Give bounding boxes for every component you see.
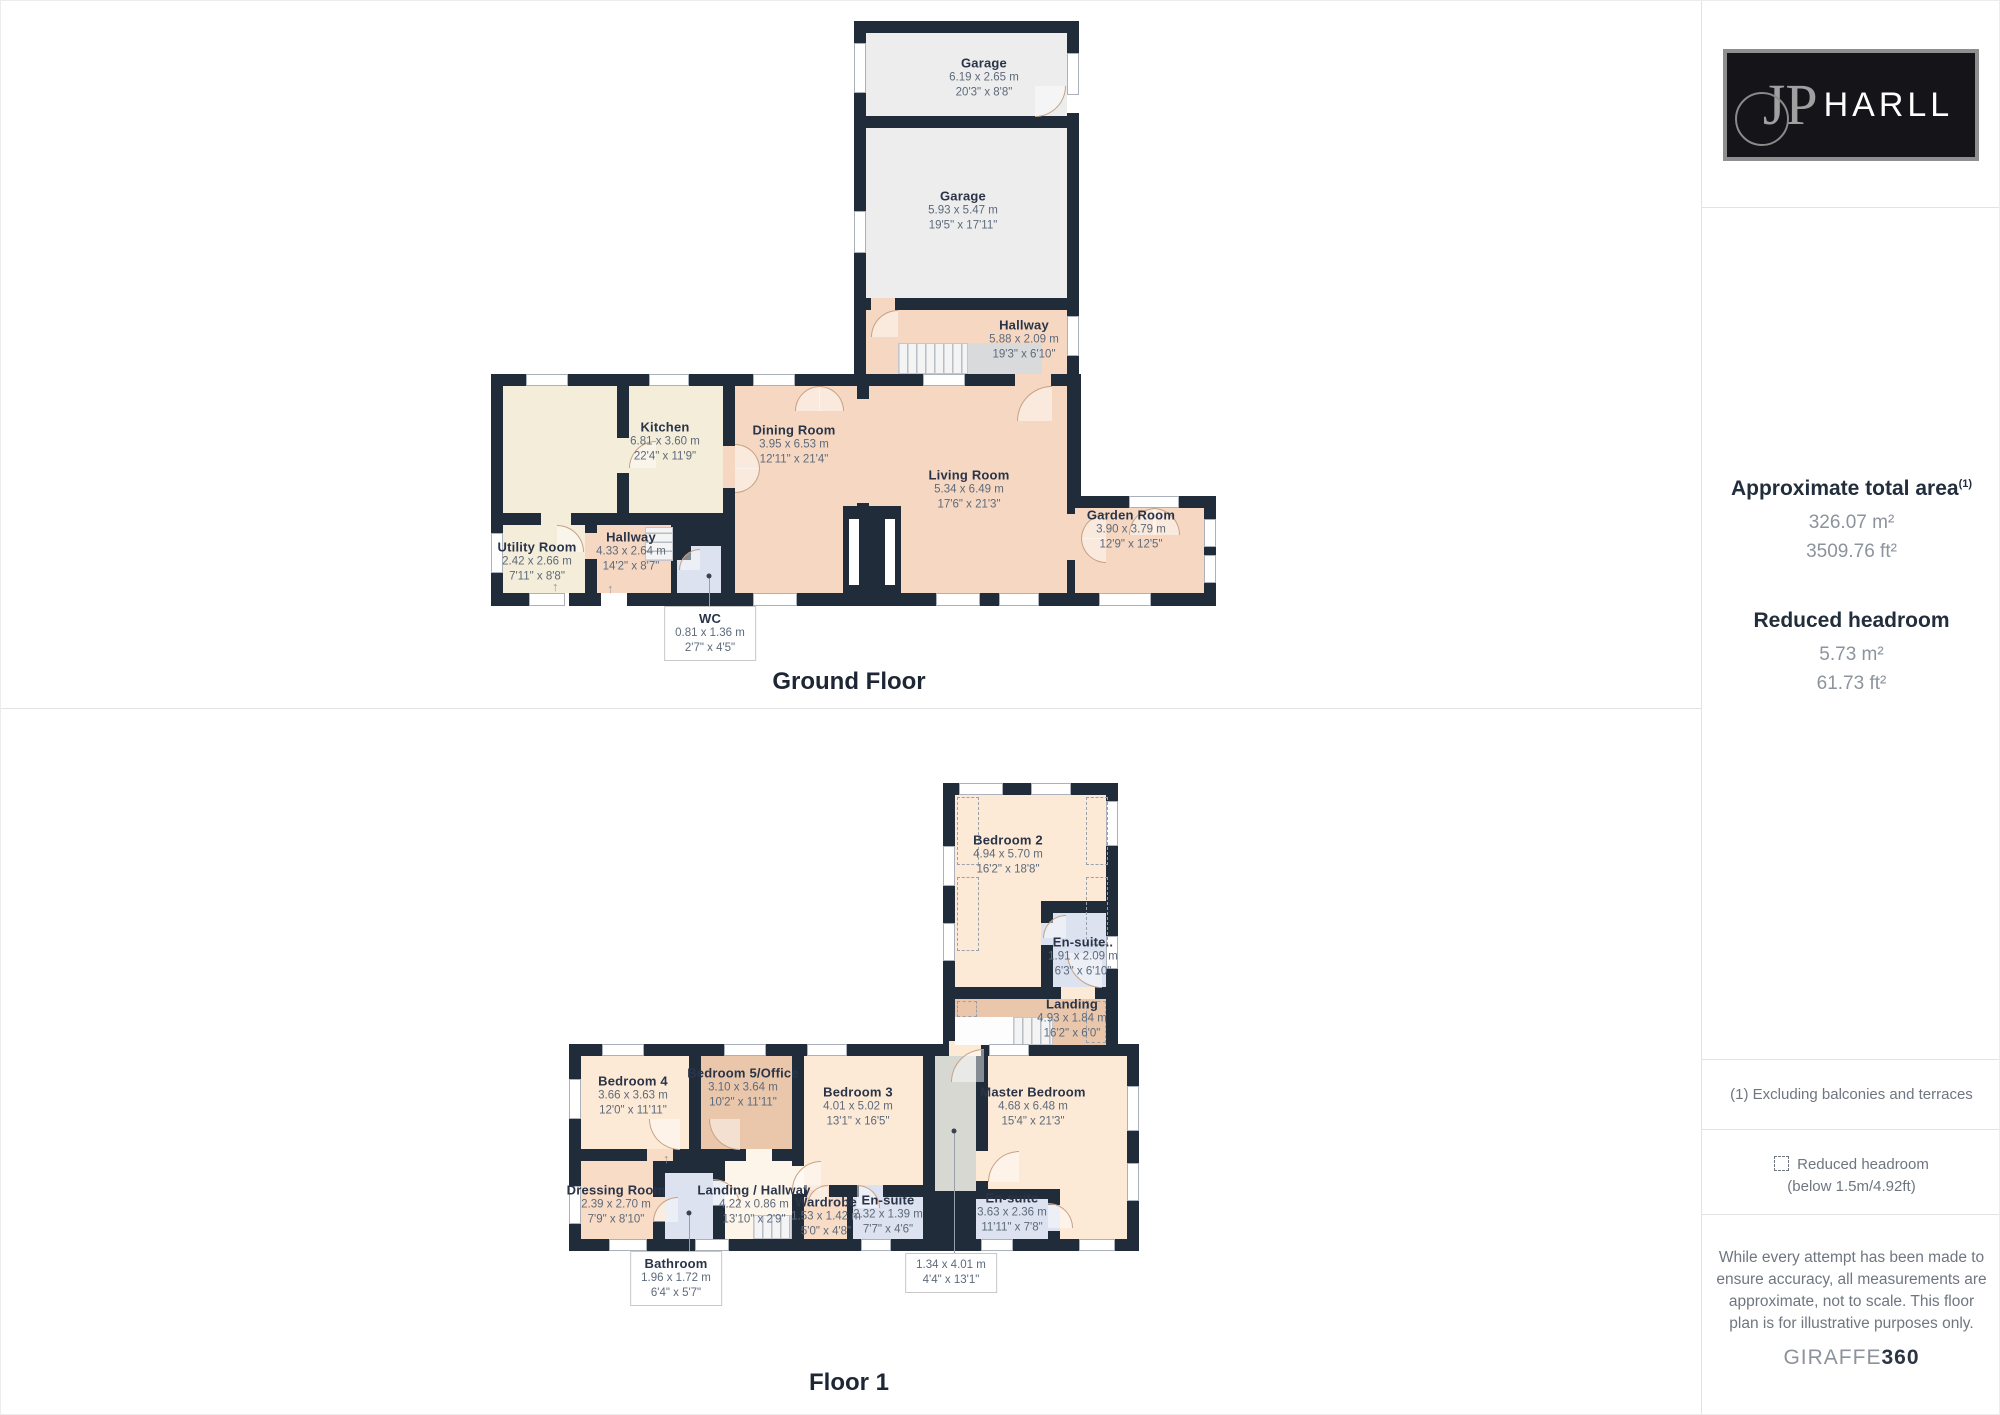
room-label-garage-1: Garage 6.19 x 2.65 m 20'3" x 8'8" — [949, 55, 1019, 100]
window — [753, 593, 797, 606]
window — [943, 846, 955, 886]
room-label-hallway-2: Hallway 4.33 x 2.64 m 14'2" x 8'7" — [596, 529, 666, 574]
window — [1067, 316, 1079, 356]
window — [695, 1239, 729, 1251]
window — [569, 1079, 581, 1119]
floorplan-page: ↑↑↑ Garage 6.19 x 2.65 m 20'3" x 8'8" Ga… — [0, 0, 2000, 1415]
reduced-headroom-icon — [1774, 1156, 1789, 1171]
room-label-ensuite-bedroom2: En-suite.. 1.91 x 2.09 m 6'3" x 6'10" — [1048, 934, 1118, 979]
callout-connector-line — [954, 1131, 955, 1253]
staircase — [898, 343, 968, 374]
floor-section-divider — [1, 708, 1701, 709]
stair-void — [955, 1017, 1013, 1045]
reduced-headroom-m2: 5.73 m² — [1702, 644, 2000, 666]
door-opening — [857, 399, 869, 503]
legend-reduced-headroom: Reduced headroom (below 1.5m/4.92ft) — [1702, 1154, 2000, 1198]
room-label-dining-room: Dining Room 3.95 x 6.53 m 12'11" x 21'4" — [752, 422, 835, 467]
window — [1099, 593, 1151, 606]
window — [999, 593, 1039, 606]
corridor-callout: 1.34 x 4.01 m 4'4" x 13'1" — [905, 1253, 997, 1293]
window — [936, 593, 980, 606]
window — [1031, 783, 1071, 795]
room-label-master-bedroom: Master Bedroom 4.68 x 6.48 m 15'4" x 21'… — [980, 1084, 1085, 1129]
giraffe360-brand: GIRAFFE360 — [1702, 1346, 2000, 1370]
interior-wall — [617, 473, 629, 513]
room-label-kitchen: Kitchen 6.81 x 3.60 m 22'4" x 11'9" — [630, 419, 700, 464]
sidebar-divider — [1702, 1129, 2000, 1130]
window — [981, 1239, 1013, 1251]
room-label-landing: Landing 4.93 x 1.84 m 16'2" x 6'0" — [1037, 996, 1107, 1041]
window — [649, 374, 689, 386]
window — [1067, 53, 1079, 95]
window — [1079, 1239, 1115, 1251]
room-label-bedroom-2: Bedroom 2 4.94 x 5.70 m 16'2" x 18'8" — [973, 832, 1043, 877]
bathroom-callout: Bathroom 1.96 x 1.72 m 6'4" x 5'7" — [630, 1251, 722, 1306]
window — [1127, 1163, 1139, 1201]
room-label-hallway-top: Hallway 5.88 x 2.09 m 19'3" x 6'10" — [989, 317, 1059, 362]
callout-connector-dot — [707, 574, 712, 579]
room-label-dressing-room: Dressing Room 2.39 x 2.70 m 7'9" x 8'10" — [567, 1182, 666, 1227]
callout-connector-line — [689, 1213, 690, 1253]
reduced-headroom-area — [957, 877, 979, 951]
window — [854, 211, 866, 253]
room-label-garden-room: Garden Room 3.90 x 3.79 m 12'9" x 12'5" — [1087, 507, 1175, 552]
total-area-m2: 326.07 m² — [1702, 512, 2000, 534]
room-label-bedroom-3: Bedroom 3 4.01 x 5.02 m 13'1" x 16'5" — [823, 1084, 893, 1129]
room-label-wardrobe: Wardrobe 1.53 x 1.42 m 5'0" x 4'8" — [791, 1194, 861, 1239]
reduced-headroom-ft2: 61.73 ft² — [1702, 673, 2000, 695]
dining-room-floor — [735, 386, 857, 593]
door-opening — [885, 519, 895, 585]
logo-circle-flourish — [1735, 92, 1789, 146]
footnote-balconies: (1) Excluding balconies and terraces — [1702, 1084, 2000, 1106]
floor1-title: Floor 1 — [809, 1369, 889, 1397]
callout-connector-line — [709, 576, 710, 606]
window — [807, 1044, 847, 1056]
door-opening — [849, 519, 859, 585]
window — [861, 1239, 891, 1251]
window — [529, 593, 565, 606]
door-opening — [1015, 374, 1051, 386]
window — [1204, 519, 1216, 547]
ground-floor-title: Ground Floor — [772, 668, 925, 696]
window — [1129, 496, 1179, 508]
jp-harll-logo: JP HARLL — [1723, 49, 1979, 161]
window — [989, 1044, 1029, 1056]
room-label-ensuite-master: En-suite 3.63 x 2.36 m 11'11" x 7'8" — [977, 1190, 1047, 1235]
window — [943, 923, 955, 961]
window — [923, 374, 965, 386]
window — [1204, 555, 1216, 583]
room-label-garage-2: Garage 5.93 x 5.47 m 19'5" x 17'11" — [928, 188, 998, 233]
sidebar-divider — [1702, 1214, 2000, 1215]
callout-connector-dot — [952, 1129, 957, 1134]
window — [1127, 1086, 1139, 1131]
wc-callout: WC 0.81 x 1.36 m 2'7" x 4'5" — [664, 606, 756, 661]
info-sidebar: JP HARLL Approximate total area(1) 326.0… — [1701, 1, 2000, 1414]
window — [609, 1239, 647, 1251]
logo-harll-text: HARLL — [1824, 86, 1954, 125]
room-label-utility-room: Utility Room 2.42 x 2.66 m 7'11" x 8'8" — [498, 539, 577, 584]
room-label-ensuite-bedroom3: En-suite 2.32 x 1.39 m 7'7" x 4'6" — [853, 1192, 923, 1237]
window — [724, 1044, 766, 1056]
master-bedroom-floor — [1060, 1179, 1127, 1239]
door-opening — [541, 513, 571, 525]
door-opening — [976, 1151, 988, 1181]
logo-jp-monogram: JP — [1749, 76, 1818, 134]
total-area-ft2: 3509.76 ft² — [1702, 541, 2000, 563]
callout-connector-dot — [687, 1211, 692, 1216]
interior-wall — [617, 386, 629, 438]
window — [854, 43, 866, 93]
window — [959, 783, 1003, 795]
window — [753, 374, 795, 386]
sidebar-divider — [1702, 207, 2000, 208]
window — [602, 1044, 644, 1056]
disclaimer-text: While every attempt has been made to ens… — [1716, 1247, 1987, 1335]
room-label-bedroom-5-office: Bedroom 5/Office 3.10 x 3.64 m 10'2" x 1… — [687, 1065, 799, 1110]
reduced-headroom-area — [1086, 797, 1108, 865]
sidebar-divider — [1702, 1059, 2000, 1060]
window — [526, 374, 568, 386]
door-opening — [871, 298, 895, 310]
entrance-arrow: ↑ — [663, 1151, 675, 1163]
total-area-title: Approximate total area(1) — [1702, 477, 2000, 501]
room-label-living-room: Living Room 5.34 x 6.49 m 17'6" x 21'3" — [929, 467, 1010, 512]
reduced-headroom-area — [957, 1001, 977, 1017]
door-opening — [746, 1149, 772, 1161]
reduced-headroom-title: Reduced headroom — [1702, 609, 2000, 633]
room-label-bedroom-4: Bedroom 4 3.66 x 3.63 m 12'0" x 11'11" — [598, 1073, 668, 1118]
door-opening — [601, 593, 627, 606]
entrance-arrow: ↑ — [607, 581, 619, 593]
door-opening — [723, 446, 735, 488]
door-opening — [1067, 514, 1081, 560]
